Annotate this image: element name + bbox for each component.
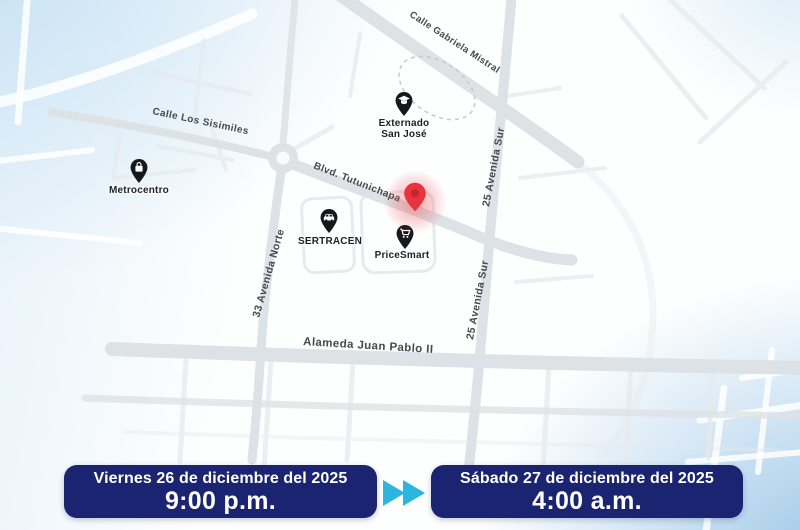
end-banner: Sábado 27 de diciembre del 2025 4:00 a.m… xyxy=(431,465,743,518)
shopping-bag-icon xyxy=(129,158,149,184)
end-time: 4:00 a.m. xyxy=(532,488,642,514)
fast-forward-icon xyxy=(383,480,427,506)
poi-label-metrocentro: Metrocentro xyxy=(84,185,194,196)
fast-forward-triangle-left xyxy=(383,480,405,506)
start-date: Viernes 26 de diciembre del 2025 xyxy=(94,470,348,488)
roundabout xyxy=(268,143,298,173)
road-closure-announcement: Calle Gabriela Mistral Calle Los Sisimil… xyxy=(0,0,800,530)
poi-label-externado-san-jose: Externado San José xyxy=(349,118,459,140)
poi-label-sertracen: SERTRACEN xyxy=(275,236,385,247)
poi-label-pricesmart: PriceSmart xyxy=(347,250,457,261)
car-icon xyxy=(319,208,339,234)
graduation-cap-icon xyxy=(394,91,414,117)
street-label-gabriela-mistral: Calle Gabriela Mistral xyxy=(407,9,501,76)
street-label-25-avenida-sur-upper: 25 Avenida Sur xyxy=(480,126,507,207)
closure-location-pin xyxy=(403,182,427,212)
poi-pin-externado-san-jose: Externado San José xyxy=(394,91,414,117)
start-time: 9:00 p.m. xyxy=(165,488,276,514)
red-pin-icon xyxy=(403,182,427,212)
faded-corner-roads xyxy=(0,0,800,530)
main-roads xyxy=(52,0,800,475)
start-banner: Viernes 26 de diciembre del 2025 9:00 p.… xyxy=(64,465,377,518)
poi-pin-metrocentro: Metrocentro xyxy=(129,158,149,184)
city-map: Calle Gabriela Mistral Calle Los Sisimil… xyxy=(0,0,800,530)
fast-forward-triangle-right xyxy=(403,480,425,506)
end-date: Sábado 27 de diciembre del 2025 xyxy=(460,470,714,488)
poi-pin-sertracen: SERTRACEN xyxy=(319,208,339,234)
